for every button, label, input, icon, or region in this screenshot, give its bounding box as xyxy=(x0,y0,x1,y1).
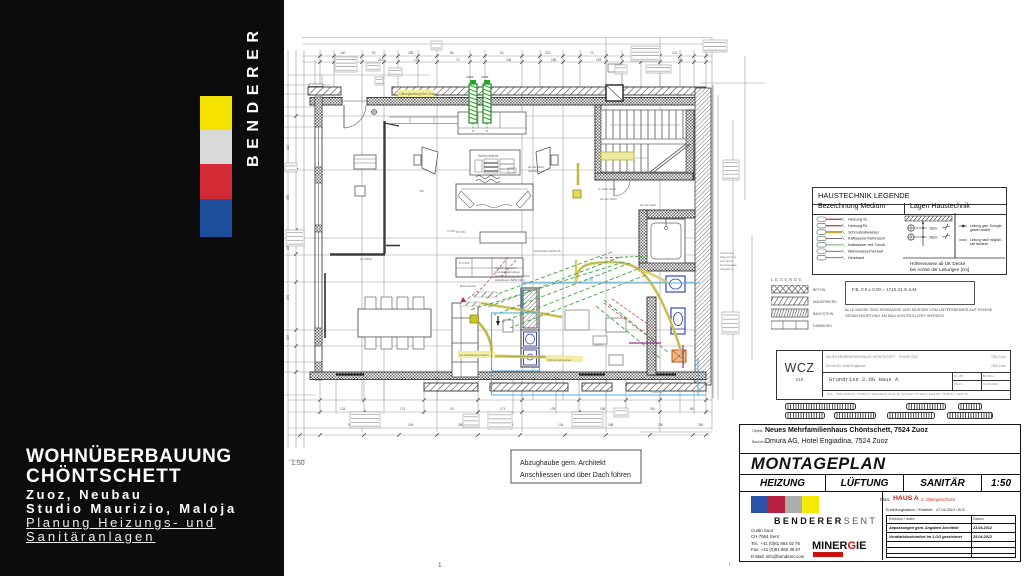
svg-text:gesetz isoliert: gesetz isoliert xyxy=(970,228,990,232)
svg-text:n 160 m: n 160 m xyxy=(592,343,603,347)
svg-text:188: 188 xyxy=(551,58,557,62)
svg-text:368: 368 xyxy=(458,423,464,427)
svg-text:285: 285 xyxy=(408,51,414,55)
svg-text:1: 1 xyxy=(438,562,442,569)
svg-text:230: 230 xyxy=(658,423,664,427)
svg-text:299: 299 xyxy=(286,294,290,300)
svg-text:50: 50 xyxy=(500,51,504,55)
svg-text:321: 321 xyxy=(545,51,551,55)
svg-text:Höhenmasse ab UK Decke: Höhenmasse ab UK Decke xyxy=(910,261,966,266)
svg-text:245: 245 xyxy=(506,58,512,62)
svg-text:124: 124 xyxy=(558,423,564,427)
svg-text:383: 383 xyxy=(286,194,290,200)
svg-text:we der Dach: we der Dach xyxy=(600,197,617,201)
svg-text:Kaltwasser red. Druck: Kaltwasser red. Druck xyxy=(848,243,885,247)
svg-text:Lüftungsleitung über Dach: Lüftungsleitung über Dach xyxy=(399,92,436,96)
svg-text:Heizband: Heizband xyxy=(848,256,864,260)
svg-text:Heizung RL: Heizung RL xyxy=(848,224,868,228)
svg-text:ab der Dach: ab der Dach xyxy=(640,203,657,207)
svg-text:198: 198 xyxy=(600,407,606,411)
svg-text:160: 160 xyxy=(340,51,346,55)
svg-text:MAUERWERK: MAUERWERK xyxy=(813,300,837,304)
svg-text:C.PSL: C.PSL xyxy=(447,229,456,233)
svg-text:181: 181 xyxy=(678,58,684,62)
svg-text:B3: B3 xyxy=(420,189,424,193)
svg-text:VAB2: VAB2 xyxy=(481,75,489,79)
svg-text:Heizung VL: Heizung VL xyxy=(848,218,868,222)
svg-text:BETON: BETON xyxy=(813,288,826,292)
svg-text:350: 350 xyxy=(698,423,704,427)
svg-text:222.5: 222.5 xyxy=(652,389,663,394)
svg-text:173: 173 xyxy=(500,407,506,411)
svg-text:361: 361 xyxy=(650,407,656,411)
svg-text:Warmwasser/Vorlauf: Warmwasser/Vorlauf xyxy=(848,250,884,254)
svg-text:bei Achse der Leitungen [cm]: bei Achse der Leitungen [cm] xyxy=(910,267,969,272)
svg-text:139: 139 xyxy=(550,407,556,411)
svg-text:174: 174 xyxy=(400,407,406,411)
svg-text:Bodenkanal: Bodenkanal xyxy=(460,284,476,288)
svg-text:BACKSTEIN: BACKSTEIN xyxy=(813,312,834,316)
svg-text:1:50: 1:50 xyxy=(291,460,305,467)
svg-text:I: I xyxy=(729,562,731,568)
svg-text:Kaltwasser/Verbrauch: Kaltwasser/Verbrauch xyxy=(848,237,885,241)
svg-text:im Wan Dach: im Wan Dach xyxy=(598,187,616,191)
svg-text:Spindelwind: Spindelwind xyxy=(528,169,545,173)
svg-text:92: 92 xyxy=(372,51,376,55)
svg-text:74: 74 xyxy=(456,58,460,62)
svg-text:212: 212 xyxy=(286,144,290,150)
svg-text:mit Abdeckung rostfrei: mit Abdeckung rostfrei xyxy=(459,353,489,357)
svg-text:keit isolieren: keit isolieren xyxy=(970,242,988,246)
svg-text:224: 224 xyxy=(672,51,678,55)
svg-text:84: 84 xyxy=(690,407,694,411)
svg-text:188: 188 xyxy=(608,423,614,427)
svg-text:18cm: 18cm xyxy=(929,227,937,231)
svg-text:53: 53 xyxy=(450,407,454,411)
svg-text:128: 128 xyxy=(340,407,346,411)
svg-text:Wohnzimmer: Wohnzimmer xyxy=(478,154,499,158)
svg-text:DÄMMUNG: DÄMMUNG xyxy=(813,324,832,328)
svg-text:70: 70 xyxy=(590,51,594,55)
svg-text:B.3-05k: B.3-05k xyxy=(459,261,470,265)
svg-text:149: 149 xyxy=(408,423,414,427)
svg-text:Anschliessen und über Dach füh: Anschliessen und über Dach führen xyxy=(520,472,631,479)
svg-text:119: 119 xyxy=(414,58,419,62)
svg-text:Schmutzabwasser: Schmutzabwasser xyxy=(848,230,880,234)
svg-text:Anschluss HWW 20: Anschluss HWW 20 xyxy=(534,249,561,253)
svg-text:242: 242 xyxy=(378,58,384,62)
svg-text:Schmutzabwasser: Schmutzabwasser xyxy=(547,358,572,362)
svg-text:86: 86 xyxy=(450,51,454,55)
svg-text:85 PNL: 85 PNL xyxy=(456,230,466,234)
svg-text:VAB2: VAB2 xyxy=(466,75,474,79)
svg-text:Abzughaube gem. Architekt: Abzughaube gem. Architekt xyxy=(520,460,606,467)
svg-text:Angabe It.: Angabe It. xyxy=(720,267,734,271)
svg-text:1.90: 1.90 xyxy=(585,277,594,282)
svg-text:ab 28/34: ab 28/34 xyxy=(360,257,372,261)
svg-text:Anschluss HWW 220v: Anschluss HWW 220v xyxy=(495,278,525,282)
svg-text:167: 167 xyxy=(286,334,290,340)
svg-text:28cm: 28cm xyxy=(929,236,937,240)
svg-text:153: 153 xyxy=(596,58,602,62)
